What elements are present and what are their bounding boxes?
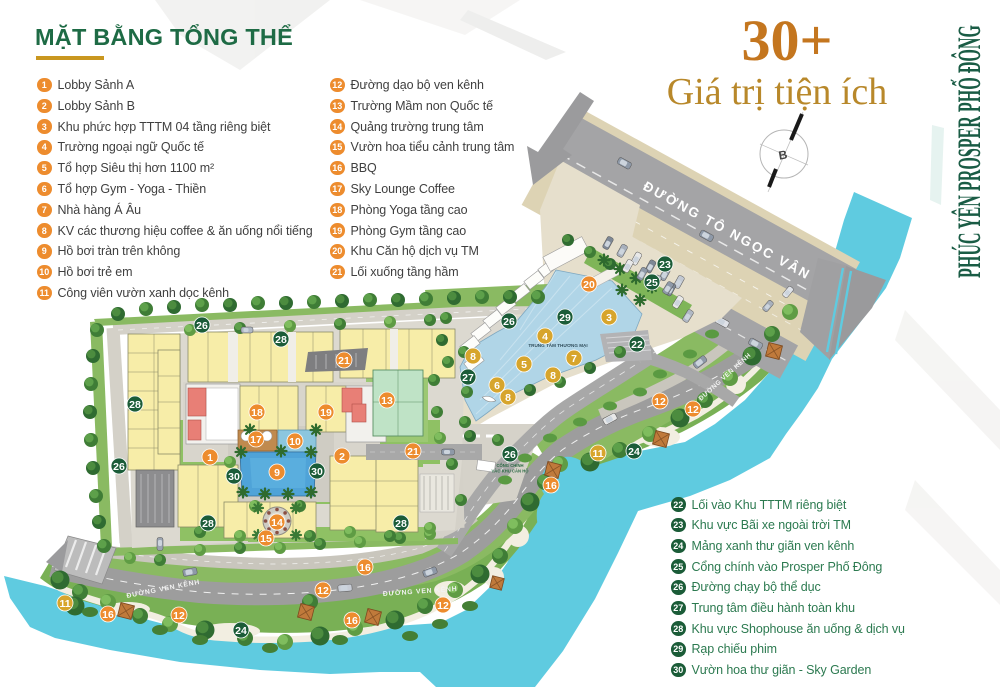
- svg-text:11: 11: [59, 598, 70, 610]
- svg-text:30: 30: [228, 471, 240, 483]
- svg-text:10: 10: [289, 436, 301, 448]
- svg-text:19: 19: [320, 407, 332, 419]
- svg-text:PHÚC YÊN PROSPER PHỐ ĐÔNG: PHÚC YÊN PROSPER PHỐ ĐÔNG: [951, 25, 987, 278]
- svg-text:15: 15: [260, 533, 272, 545]
- svg-text:28: 28: [202, 518, 214, 530]
- svg-text:7: 7: [571, 353, 577, 365]
- svg-text:30: 30: [311, 466, 323, 478]
- svg-text:17: 17: [250, 434, 262, 446]
- svg-text:21: 21: [338, 355, 350, 367]
- svg-text:26: 26: [503, 316, 515, 328]
- svg-text:27: 27: [462, 372, 474, 384]
- svg-text:14: 14: [271, 517, 283, 529]
- svg-text:16: 16: [545, 480, 557, 492]
- svg-text:11: 11: [592, 448, 603, 460]
- svg-text:29: 29: [559, 312, 571, 324]
- svg-text:28: 28: [395, 518, 407, 530]
- svg-text:26: 26: [196, 320, 208, 332]
- svg-text:28: 28: [275, 334, 287, 346]
- svg-text:25: 25: [646, 277, 658, 289]
- svg-text:18: 18: [251, 407, 263, 419]
- svg-text:3: 3: [606, 312, 612, 324]
- svg-text:CỔNG CHÍNH: CỔNG CHÍNH: [497, 463, 524, 468]
- svg-text:TRUNG TÂM THƯƠNG MẠI: TRUNG TÂM THƯƠNG MẠI: [528, 342, 587, 348]
- svg-text:16: 16: [359, 562, 371, 574]
- svg-text:8: 8: [470, 351, 476, 363]
- svg-text:22: 22: [631, 339, 643, 351]
- svg-text:16: 16: [102, 609, 114, 621]
- svg-text:21: 21: [407, 446, 419, 458]
- svg-text:8: 8: [505, 392, 511, 404]
- svg-text:26: 26: [504, 449, 516, 461]
- svg-text:16: 16: [346, 615, 358, 627]
- svg-text:23: 23: [659, 259, 671, 271]
- svg-text:VÀO KHU CĂN HỘ: VÀO KHU CĂN HỘ: [492, 469, 530, 474]
- svg-text:12: 12: [173, 610, 185, 622]
- svg-text:12: 12: [654, 396, 666, 408]
- svg-text:26: 26: [113, 461, 125, 473]
- svg-text:12: 12: [317, 585, 329, 597]
- svg-text:9: 9: [274, 467, 280, 479]
- svg-text:1: 1: [207, 452, 213, 464]
- svg-text:4: 4: [542, 331, 548, 343]
- svg-text:20: 20: [583, 279, 595, 291]
- svg-text:24: 24: [628, 446, 640, 458]
- svg-text:12: 12: [687, 404, 699, 416]
- svg-text:B: B: [778, 147, 789, 162]
- svg-text:2: 2: [339, 451, 345, 463]
- svg-text:24: 24: [235, 625, 247, 637]
- svg-text:13: 13: [381, 395, 393, 407]
- svg-text:12: 12: [437, 600, 449, 612]
- svg-text:8: 8: [550, 370, 556, 382]
- svg-text:28: 28: [129, 399, 141, 411]
- svg-text:5: 5: [521, 359, 527, 371]
- svg-text:6: 6: [494, 380, 500, 392]
